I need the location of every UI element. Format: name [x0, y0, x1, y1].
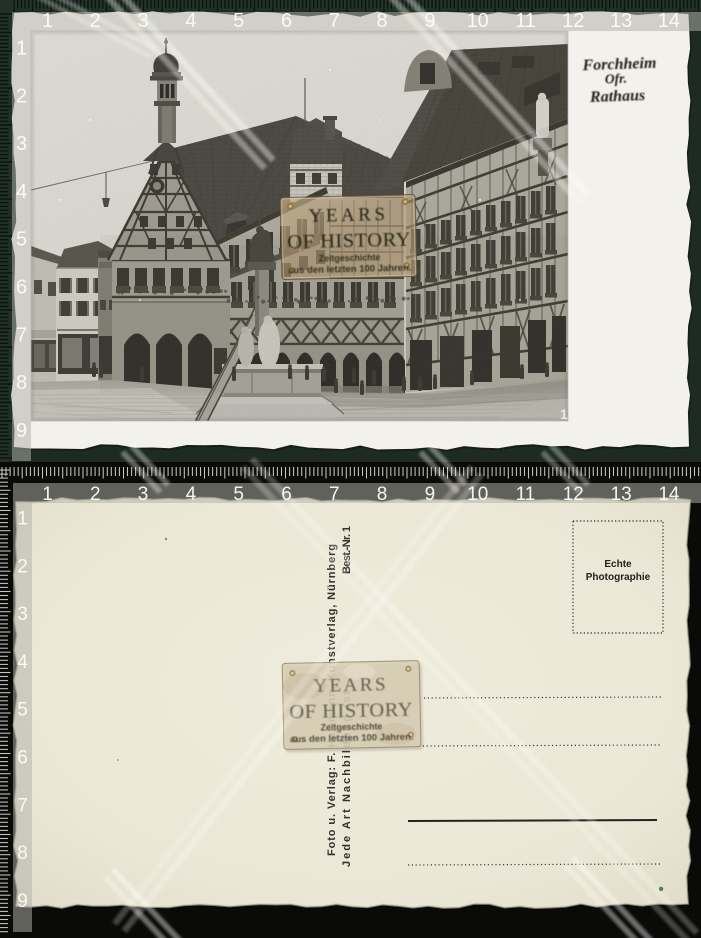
svg-text:1: 1	[16, 38, 27, 60]
svg-text:2: 2	[17, 556, 28, 577]
svg-text:5: 5	[16, 229, 27, 251]
svg-text:14: 14	[658, 10, 680, 32]
svg-text:7: 7	[17, 795, 28, 816]
svg-text:6: 6	[16, 277, 27, 299]
svg-text:9: 9	[17, 891, 28, 912]
svg-text:10: 10	[467, 10, 489, 32]
svg-text:3: 3	[138, 484, 149, 505]
svg-text:6: 6	[17, 748, 28, 769]
svg-text:Zeitgeschichte: Zeitgeschichte	[321, 721, 383, 732]
svg-text:5: 5	[233, 10, 244, 32]
svg-text:7: 7	[16, 324, 27, 346]
svg-text:2: 2	[16, 85, 27, 107]
svg-text:13: 13	[610, 10, 632, 32]
svg-text:OF HISTORY: OF HISTORY	[289, 699, 413, 724]
svg-text:1: 1	[17, 509, 28, 530]
svg-text:6: 6	[281, 10, 292, 32]
svg-text:Photographie: Photographie	[586, 572, 651, 583]
svg-text:Zeitgeschichte: Zeitgeschichte	[319, 252, 381, 263]
svg-text:2: 2	[90, 484, 101, 505]
svg-text:9: 9	[16, 420, 27, 442]
svg-text:1: 1	[560, 406, 568, 422]
svg-text:3: 3	[16, 133, 27, 155]
svg-text:9: 9	[425, 484, 436, 505]
svg-text:8: 8	[16, 372, 27, 394]
svg-text:14: 14	[658, 484, 680, 505]
svg-text:7: 7	[329, 10, 340, 32]
svg-text:1: 1	[42, 484, 53, 505]
svg-text:8: 8	[377, 484, 388, 505]
svg-text:8: 8	[377, 10, 388, 32]
svg-text:Rathaus: Rathaus	[589, 87, 646, 106]
svg-text:YEARS: YEARS	[308, 204, 388, 227]
svg-text:4: 4	[16, 181, 27, 203]
svg-text:Echte: Echte	[604, 559, 632, 570]
svg-text:5: 5	[17, 700, 28, 721]
svg-text:8: 8	[17, 843, 28, 864]
svg-text:4: 4	[185, 10, 196, 32]
svg-text:Ofr.: Ofr.	[605, 71, 628, 87]
svg-text:7: 7	[329, 484, 340, 505]
svg-text:4: 4	[186, 484, 197, 505]
svg-text:3: 3	[17, 604, 28, 625]
svg-text:11: 11	[516, 484, 536, 505]
svg-text:1: 1	[42, 10, 53, 32]
svg-text:OF HISTORY: OF HISTORY	[287, 229, 411, 254]
svg-text:5: 5	[233, 484, 244, 505]
svg-text:4: 4	[17, 652, 28, 673]
svg-text:11: 11	[515, 10, 536, 32]
svg-text:12: 12	[562, 10, 584, 32]
svg-text:13: 13	[611, 484, 632, 505]
